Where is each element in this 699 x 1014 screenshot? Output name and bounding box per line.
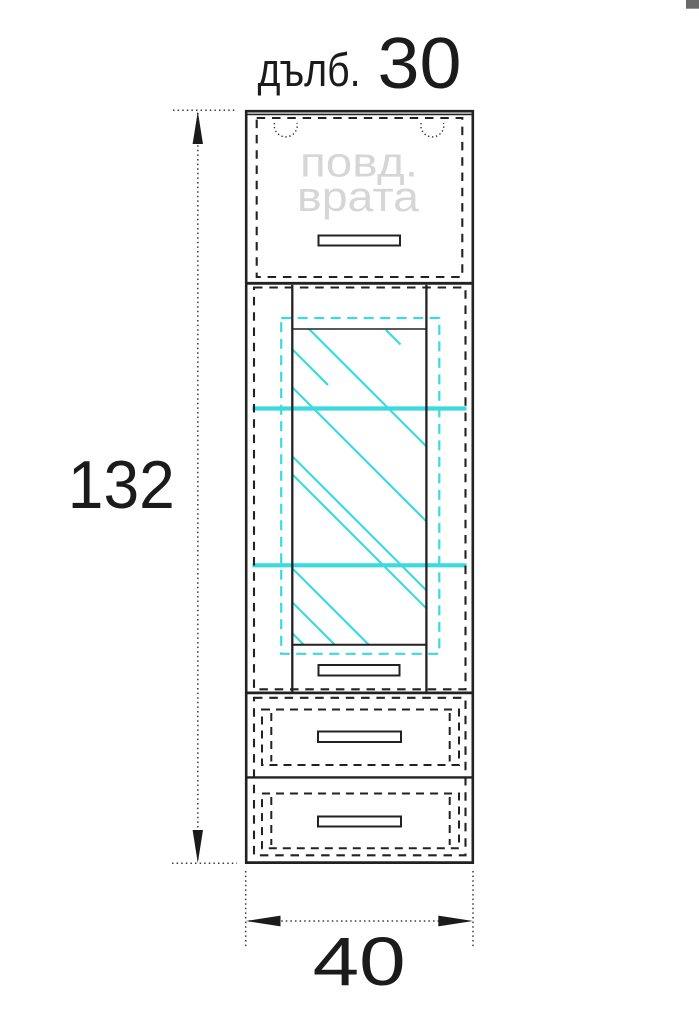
svg-text:врата: врата	[297, 173, 420, 220]
svg-text:дълб.: дълб.	[258, 43, 361, 96]
svg-text:132: 132	[68, 447, 175, 523]
svg-text:30: 30	[378, 23, 462, 104]
svg-text:40: 40	[313, 923, 406, 1000]
